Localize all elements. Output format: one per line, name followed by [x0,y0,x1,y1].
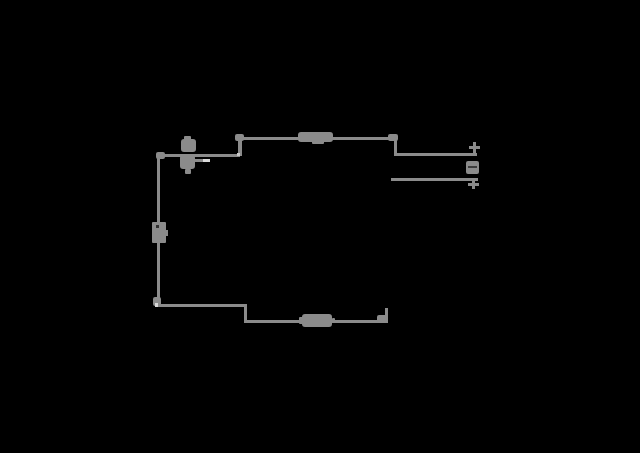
left-label-box-tab [165,230,168,236]
source-symbol-lower-blob [180,155,195,169]
arrowhead-top-right [388,134,398,141]
arrowhead-bottom-right [377,315,388,323]
left-label-box-dot [156,225,159,228]
bottom-left-line [157,304,247,307]
right-lower-lead [391,178,478,181]
source-symbol-upper-blob [181,139,196,152]
bottom-line-label-bump-right [332,318,335,323]
left-vertical-label-box [152,222,166,243]
bottom-line-label-bump-left [299,317,303,324]
bottom-line-label-blob [302,314,332,327]
left-feed-line [158,154,240,157]
cross-marker-lower-hbar [468,183,479,186]
junction-speck-top-left [237,153,240,156]
junction-speck-left-bottom [155,303,158,307]
plus-marker-upper-hbar [469,146,480,149]
arrowhead-left-top [156,152,165,159]
top-line-label-underbump [312,141,324,144]
source-symbol-stem [185,169,191,174]
right-upper-lead [396,153,477,156]
arrowhead-top-left [235,134,244,141]
source-symbol-highlight [203,159,210,162]
mid-voltage-label-gap [468,166,477,168]
schematic-canvas [0,0,640,453]
